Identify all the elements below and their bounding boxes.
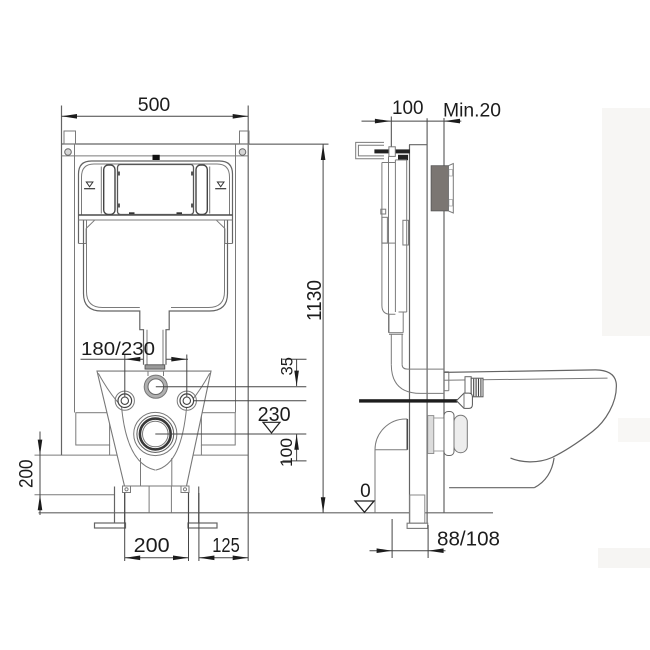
svg-text:125: 125 xyxy=(212,534,240,557)
svg-text:200: 200 xyxy=(134,534,170,557)
svg-text:100: 100 xyxy=(392,98,424,119)
svg-text:1130: 1130 xyxy=(304,280,326,321)
svg-text:500: 500 xyxy=(138,95,171,116)
svg-text:88/108: 88/108 xyxy=(437,529,500,551)
svg-text:Min.20: Min.20 xyxy=(443,101,501,122)
svg-text:100: 100 xyxy=(277,438,296,467)
svg-text:35: 35 xyxy=(277,357,296,376)
svg-text:180/230: 180/230 xyxy=(81,338,155,359)
svg-text:0: 0 xyxy=(360,481,371,502)
svg-text:200: 200 xyxy=(17,459,38,488)
